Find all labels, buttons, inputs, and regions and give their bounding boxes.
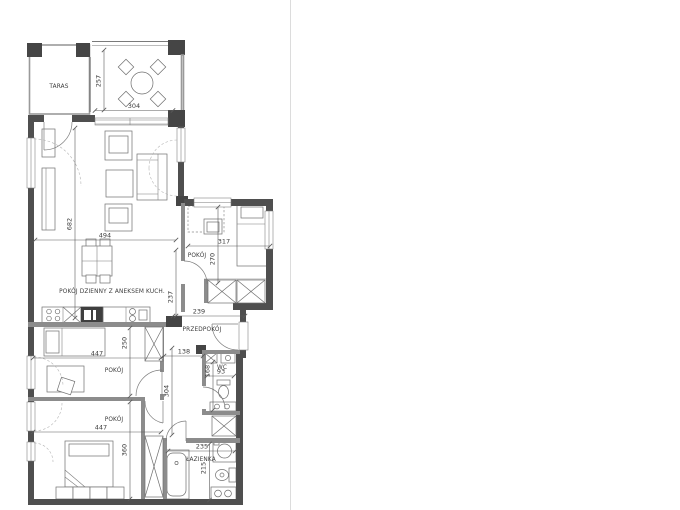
dim-bedroom-right-depth: 270: [209, 253, 217, 265]
room-label-taras: TARAS: [48, 84, 68, 90]
toilet-symbol: [217, 380, 230, 385]
column: [168, 110, 185, 127]
dresser-symbol: [107, 487, 124, 499]
terrace-furniture: [118, 59, 166, 107]
dresser-symbol: [56, 487, 73, 499]
window: [27, 402, 35, 431]
door-swing: [184, 261, 207, 284]
small-basin-symbol: [221, 353, 235, 363]
dim-hall-width: 239: [193, 308, 205, 316]
dim-bedroom-middle-depth: 250: [121, 337, 129, 349]
wardrobe-symbol: [212, 416, 236, 436]
window: [27, 138, 35, 188]
chair-symbol: [118, 59, 134, 75]
window-swing: [34, 443, 53, 462]
room-label-living: POKÓJ DZIENNY Z ANEKSEM KUCH.: [59, 288, 165, 295]
column: [168, 40, 185, 55]
dim-terrace-width: 304: [128, 102, 140, 110]
column: [76, 43, 90, 57]
floor-plan-page: 304 257 682 494 317 270 237 239 138 304 …: [0, 0, 680, 510]
chair-symbol: [150, 59, 166, 75]
dim-corridor-length: 304: [163, 385, 171, 397]
dim-living-length: 682: [66, 218, 74, 230]
dim-terrace-depth: 257: [95, 75, 103, 87]
toilet-symbol: [229, 468, 236, 482]
sofa-symbol: [137, 154, 167, 200]
bed-symbol: [237, 203, 267, 266]
dim-bedroom-bottom-depth: 360: [121, 444, 129, 456]
bedroom-middle-furniture: [44, 328, 105, 395]
window: [27, 442, 35, 461]
dim-hall-depth: 237: [167, 291, 175, 303]
bed-symbol: [65, 441, 113, 487]
window-swing: [34, 403, 62, 431]
window-swing: [34, 139, 81, 186]
room-label-bedroom-middle: POKÓJ: [105, 367, 124, 374]
living-room-furniture: [42, 129, 167, 283]
room-label-wc: WC: [217, 365, 227, 371]
sofa-symbol: [42, 168, 55, 230]
wardrobe-symbol: [145, 436, 163, 497]
chair-symbol: [150, 91, 166, 107]
door-swing: [145, 401, 163, 423]
dim-living-width: 494: [99, 232, 111, 240]
room-label-bathroom: ŁAZIENKA: [185, 457, 216, 463]
window: [265, 211, 273, 249]
room-label-bedroom-right: POKÓJ: [188, 252, 207, 259]
dresser-symbol: [73, 487, 90, 499]
floor-plan: 304 257 682 494 317 270 237 239 138 304 …: [0, 0, 680, 510]
window: [27, 356, 35, 389]
dim-passage-width: 138: [178, 348, 190, 356]
round-table-symbol: [131, 72, 153, 94]
page-edge-line: [290, 0, 291, 510]
dim-bedroom-right-width: 317: [218, 238, 230, 246]
dim-bathroom-width: 235: [196, 443, 208, 451]
column: [27, 43, 42, 57]
door-swing: [136, 370, 162, 396]
wardrobe-symbol: [237, 280, 265, 303]
chair-symbol: [86, 275, 96, 283]
door-swing: [166, 421, 186, 441]
wardrobe-symbol: [145, 327, 163, 361]
dim-bathroom-depth: 215: [200, 462, 208, 474]
dim-bedroom-bottom-width: 447: [95, 424, 107, 432]
bedroom-bottom-furniture: [56, 441, 124, 499]
room-label-hall: PRZEDPOKÓJ: [183, 326, 222, 333]
wc-door-opening: [201, 386, 207, 409]
kitchen-furniture: [42, 307, 150, 323]
room-label-bedroom-bottom: POKÓJ: [105, 416, 124, 423]
chair-symbol: [100, 275, 110, 283]
coffee-table-symbol: [106, 170, 133, 197]
wardrobe-symbol: [208, 280, 236, 303]
window: [177, 128, 185, 162]
dresser-symbol: [90, 487, 107, 499]
entrance-opening: [239, 322, 248, 350]
wc-fixtures: [205, 353, 236, 411]
dim-bedroom-middle-width: 447: [91, 350, 103, 358]
window: [194, 198, 231, 207]
